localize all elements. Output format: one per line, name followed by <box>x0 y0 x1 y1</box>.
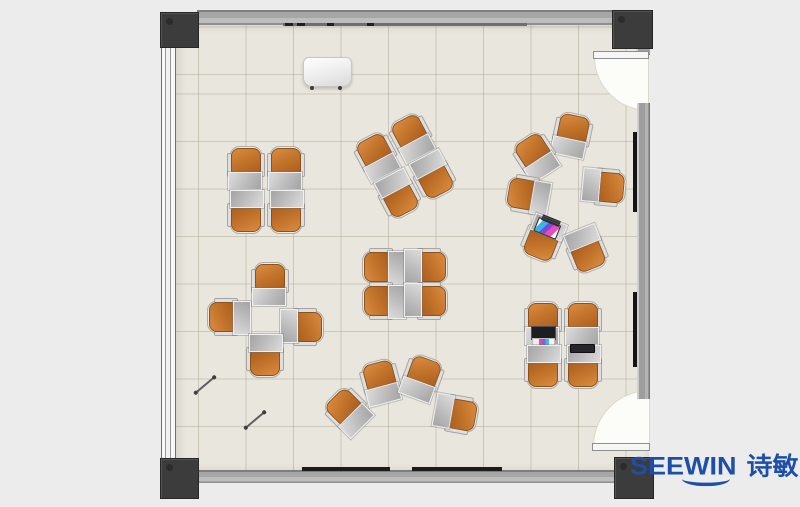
desk-chair-unit <box>247 334 283 378</box>
desk <box>268 172 302 190</box>
desk-chair-unit <box>268 146 304 190</box>
right-wall <box>637 103 650 399</box>
desk <box>527 345 561 363</box>
desk-chair-unit <box>503 173 553 216</box>
desk <box>581 167 602 202</box>
chair-seat <box>419 252 446 282</box>
desk-chair-unit <box>431 392 481 435</box>
desk <box>252 288 286 306</box>
desk-chair-unit <box>207 299 251 335</box>
chair-seat <box>295 312 322 342</box>
chair-seat <box>231 148 261 175</box>
desk-chair-unit <box>280 309 324 345</box>
laptop-closed-icon <box>570 344 595 353</box>
desk <box>230 190 264 208</box>
podium-foot <box>310 86 314 90</box>
chair-seat <box>231 205 261 232</box>
wall-board-right-2 <box>633 292 637 367</box>
desk-chair-unit <box>404 283 448 319</box>
desk-chair-unit <box>362 249 406 285</box>
chair-seat <box>364 286 391 316</box>
chair-seat <box>255 264 285 291</box>
chair-seat <box>271 148 301 175</box>
chair-seat <box>271 205 301 232</box>
desk-chair-unit <box>525 301 561 345</box>
desk <box>404 283 422 317</box>
chair-seat <box>209 302 236 332</box>
desk-chair-unit <box>252 262 288 306</box>
bottom-wall <box>197 470 615 483</box>
desk-chair-unit <box>581 167 628 207</box>
desk <box>404 249 422 283</box>
chair-seat <box>568 303 598 330</box>
chair-seat <box>568 360 598 387</box>
desk <box>270 190 304 208</box>
door-leaf-top-right <box>593 51 649 59</box>
door-leaf-bottom-right <box>592 443 650 451</box>
wall-board-right-1 <box>633 132 637 212</box>
desk <box>233 301 251 335</box>
desk <box>249 334 283 352</box>
corner-post-bottom-left <box>160 458 199 499</box>
left-window-wall <box>161 46 176 458</box>
desk-chair-unit <box>362 283 406 319</box>
whiteboard-rail-top <box>283 23 527 26</box>
chair-seat <box>250 349 280 376</box>
whiteboard-rail-bottom-2 <box>412 467 502 471</box>
logo-cjk-text: 诗敏 <box>747 454 799 479</box>
chair-seat <box>419 286 446 316</box>
chair-seat <box>528 360 558 387</box>
desk <box>565 327 599 345</box>
desk-chair-unit <box>404 249 448 285</box>
whiteboard-rail-bottom-1 <box>302 467 390 471</box>
corner-post-top-right <box>612 10 653 49</box>
seewin-logo: SEEWIN 诗敏 <box>630 453 799 480</box>
podium-foot <box>338 86 342 90</box>
desk-chair-unit <box>228 190 264 234</box>
desk-chair-unit <box>268 190 304 234</box>
podium <box>303 57 352 87</box>
logo-latin-text: SEEWIN <box>630 454 737 479</box>
desk-chair-unit <box>565 345 601 389</box>
floor-plan-canvas: SEEWIN 诗敏 <box>0 0 800 507</box>
desk-chair-unit <box>565 301 601 345</box>
smile-arc-icon <box>682 472 730 487</box>
chair-seat <box>364 252 391 282</box>
desk <box>228 172 262 190</box>
corner-post-top-left <box>160 12 199 48</box>
desk-chair-unit <box>525 345 561 389</box>
desk-chair-unit <box>228 146 264 190</box>
